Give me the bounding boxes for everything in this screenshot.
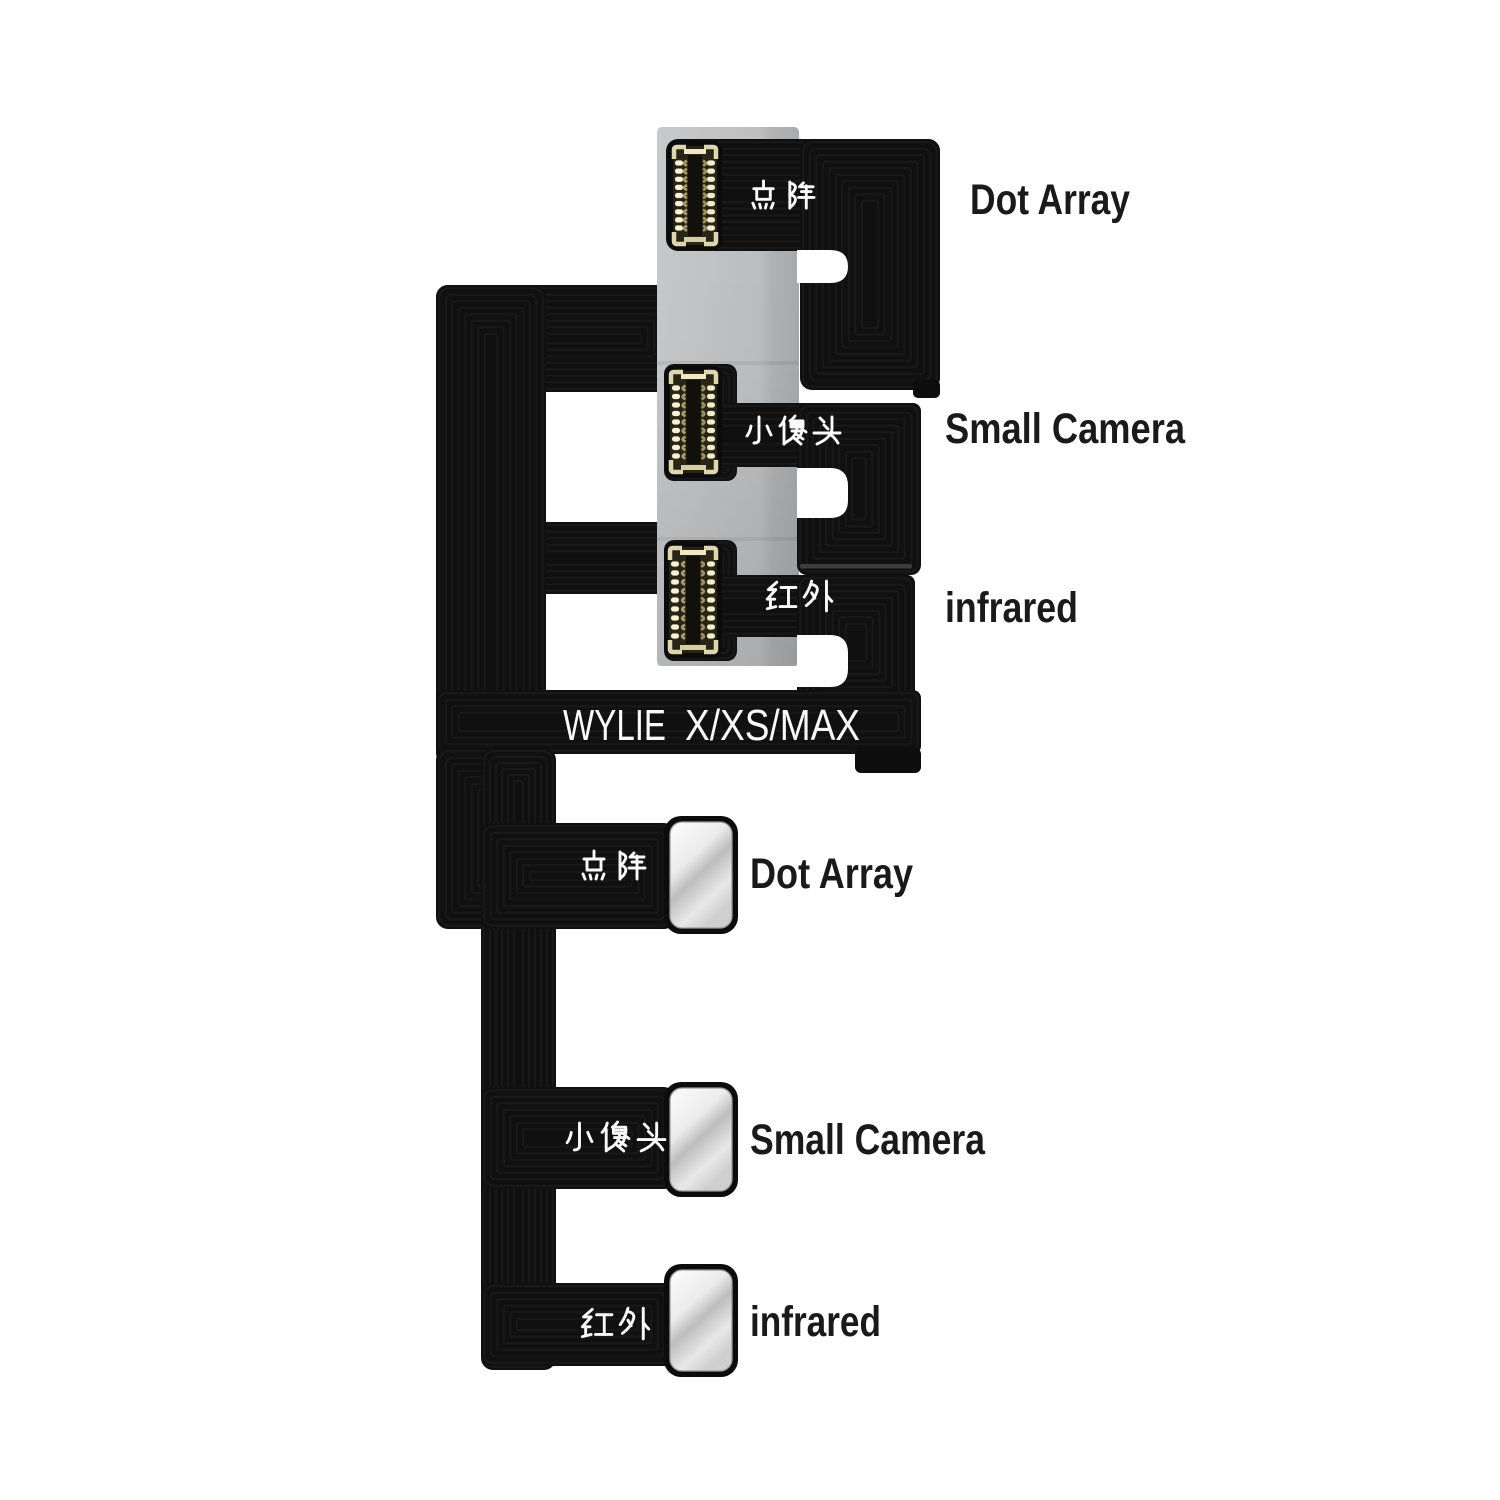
svg-text:infrared: infrared (945, 584, 1078, 632)
svg-text:Small Camera: Small Camera (750, 1116, 986, 1164)
svg-text:Small Camera: Small Camera (945, 405, 1186, 453)
svg-text:X/XS/MAX: X/XS/MAX (685, 701, 860, 750)
svg-text:WYLIE: WYLIE (563, 701, 666, 750)
svg-text:infrared: infrared (750, 1298, 881, 1346)
svg-text:Dot Array: Dot Array (970, 176, 1130, 224)
svg-text:Dot Array: Dot Array (750, 850, 913, 898)
